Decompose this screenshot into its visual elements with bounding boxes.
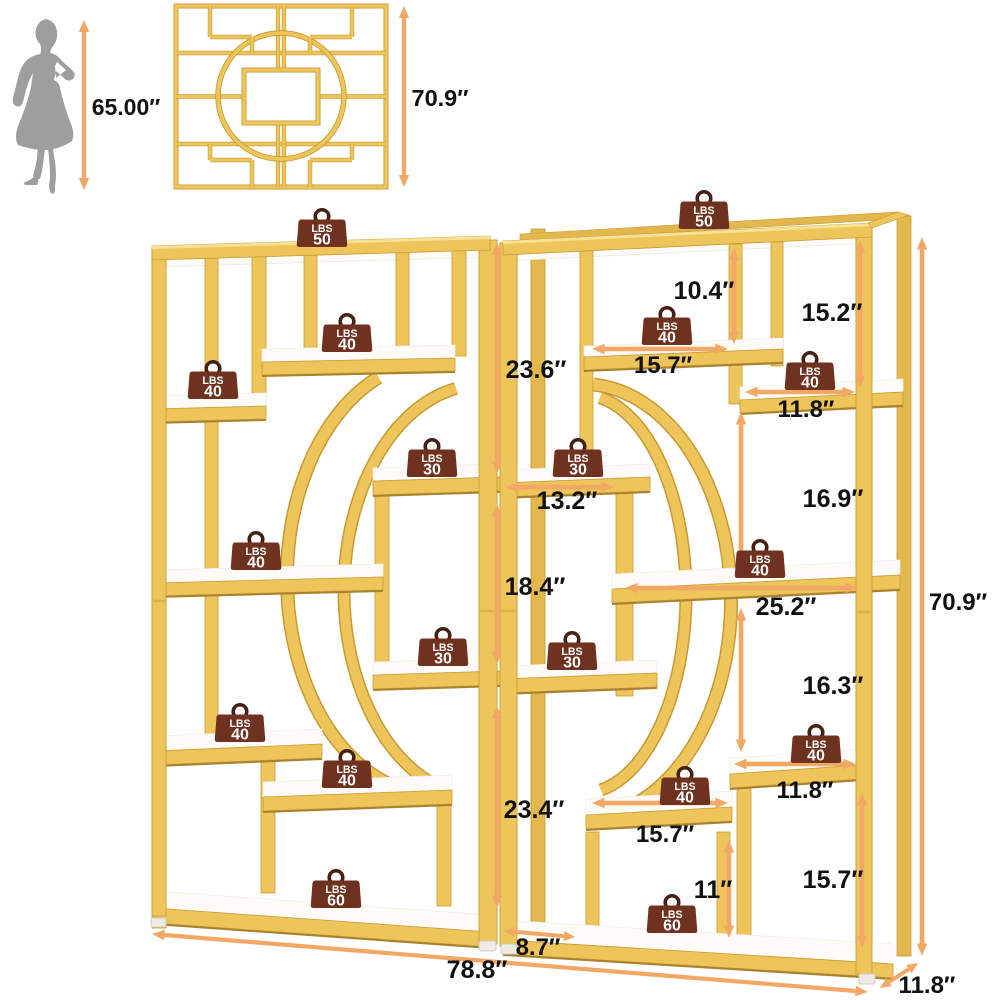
svg-text:40: 40	[801, 375, 819, 392]
svg-text:16.3″: 16.3″	[803, 672, 864, 700]
svg-text:25.2″: 25.2″	[756, 593, 817, 621]
svg-text:65.00″: 65.00″	[92, 94, 161, 120]
svg-text:30: 30	[569, 462, 587, 479]
svg-text:40: 40	[204, 384, 222, 401]
svg-text:15.7″: 15.7″	[803, 866, 864, 894]
svg-text:40: 40	[338, 337, 356, 354]
svg-text:15.7″: 15.7″	[634, 352, 693, 379]
svg-text:70.9″: 70.9″	[929, 589, 988, 616]
svg-text:50: 50	[313, 232, 331, 249]
svg-text:50: 50	[695, 214, 713, 231]
svg-text:60: 60	[327, 893, 345, 910]
svg-text:11″: 11″	[694, 876, 732, 904]
svg-text:40: 40	[247, 555, 265, 572]
svg-text:78.8″: 78.8″	[447, 956, 508, 984]
svg-text:8.7″: 8.7″	[516, 934, 561, 961]
svg-text:30: 30	[563, 655, 581, 672]
svg-text:23.4″: 23.4″	[504, 796, 565, 824]
svg-text:40: 40	[676, 790, 694, 807]
svg-text:15.2″: 15.2″	[802, 299, 863, 327]
svg-text:40: 40	[658, 330, 676, 347]
svg-text:15.7″: 15.7″	[636, 821, 695, 848]
svg-text:70.9″: 70.9″	[412, 85, 469, 111]
svg-text:10.4″: 10.4″	[674, 277, 735, 305]
svg-text:40: 40	[338, 773, 356, 790]
svg-text:40: 40	[231, 727, 249, 744]
svg-text:30: 30	[434, 651, 452, 668]
svg-text:11.8″: 11.8″	[778, 396, 835, 423]
svg-text:11.8″: 11.8″	[777, 777, 834, 804]
svg-text:13.2″: 13.2″	[537, 487, 598, 515]
svg-text:40: 40	[751, 563, 769, 580]
svg-text:18.4″: 18.4″	[505, 573, 566, 601]
svg-text:40: 40	[807, 748, 825, 765]
svg-text:16.9″: 16.9″	[803, 485, 864, 513]
svg-text:30: 30	[423, 462, 441, 479]
svg-text:23.6″: 23.6″	[506, 356, 567, 384]
svg-text:60: 60	[663, 918, 681, 935]
svg-text:11.8″: 11.8″	[899, 972, 956, 999]
